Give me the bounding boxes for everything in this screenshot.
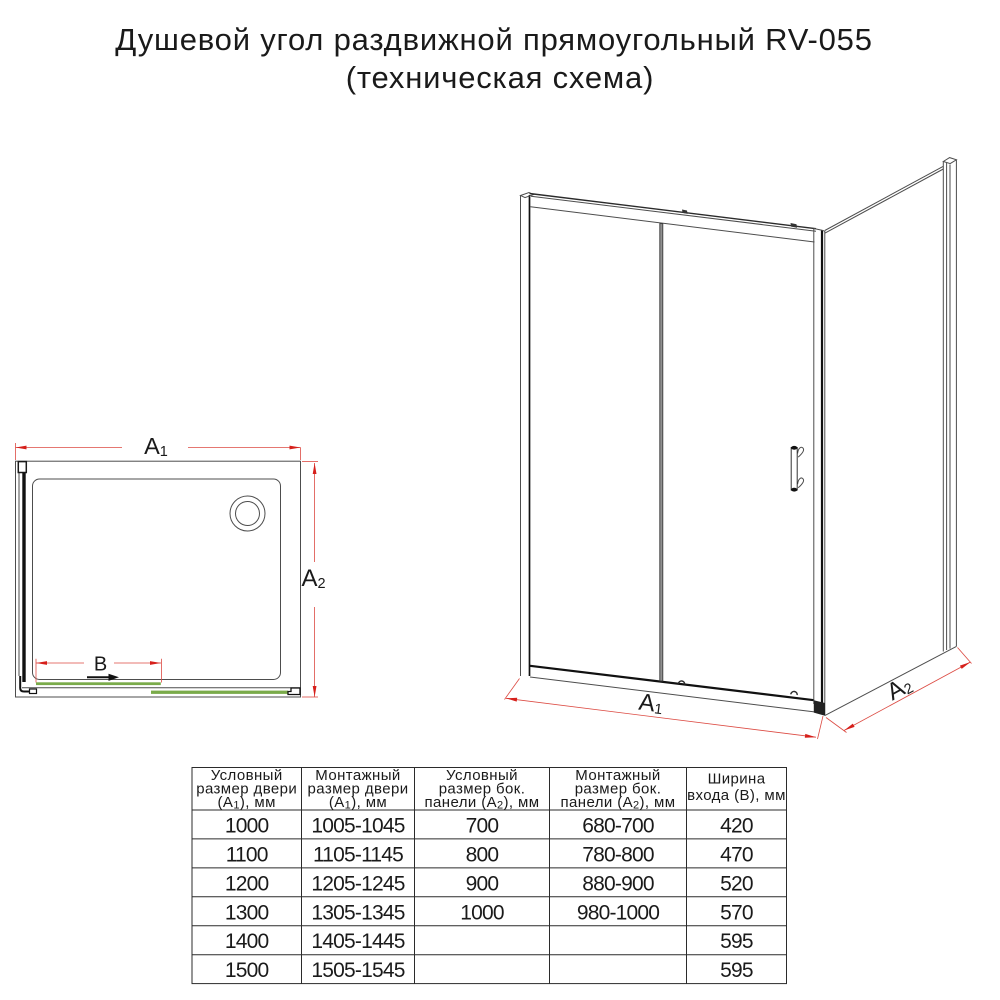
svg-text:Душевой угол раздвижной прямоу: Душевой угол раздвижной прямоугольный RV…: [115, 22, 873, 57]
svg-text:1300: 1300: [225, 901, 269, 924]
svg-text:панели (А2), мм: панели (А2), мм: [561, 794, 676, 812]
svg-text:1200: 1200: [225, 872, 269, 895]
svg-text:470: 470: [720, 843, 753, 866]
svg-text:800: 800: [466, 843, 499, 866]
svg-text:1000: 1000: [460, 901, 504, 924]
svg-text:1400: 1400: [225, 930, 269, 953]
svg-text:680-700: 680-700: [582, 815, 654, 838]
svg-text:1500: 1500: [225, 959, 269, 982]
svg-text:780-800: 780-800: [582, 843, 654, 866]
svg-text:1105-1145: 1105-1145: [313, 843, 403, 866]
svg-text:1205-1245: 1205-1245: [311, 872, 404, 895]
svg-text:1305-1345: 1305-1345: [311, 901, 404, 924]
svg-text:1100: 1100: [226, 843, 268, 866]
svg-text:420: 420: [720, 815, 753, 838]
svg-text:595: 595: [720, 959, 753, 982]
svg-text:1000: 1000: [225, 815, 269, 838]
svg-text:B: B: [94, 654, 107, 676]
svg-text:1405-1445: 1405-1445: [311, 930, 404, 953]
svg-text:700: 700: [466, 815, 499, 838]
svg-text:570: 570: [720, 901, 753, 924]
svg-text:980-1000: 980-1000: [577, 901, 659, 924]
svg-text:1505-1545: 1505-1545: [311, 959, 404, 982]
svg-text:1005-1045: 1005-1045: [311, 815, 404, 838]
svg-text:(А1), мм: (А1), мм: [329, 794, 387, 812]
svg-text:880-900: 880-900: [582, 872, 654, 895]
svg-text:панели (А2), мм: панели (А2), мм: [425, 794, 540, 812]
svg-text:520: 520: [720, 872, 753, 895]
svg-text:(А1), мм: (А1), мм: [218, 794, 276, 812]
svg-text:900: 900: [466, 872, 499, 895]
svg-text:(техническая схема): (техническая схема): [346, 60, 654, 95]
svg-text:595: 595: [720, 930, 753, 953]
svg-text:Ширина: Ширина: [708, 771, 766, 788]
svg-text:входа (В), мм: входа (В), мм: [687, 787, 786, 804]
